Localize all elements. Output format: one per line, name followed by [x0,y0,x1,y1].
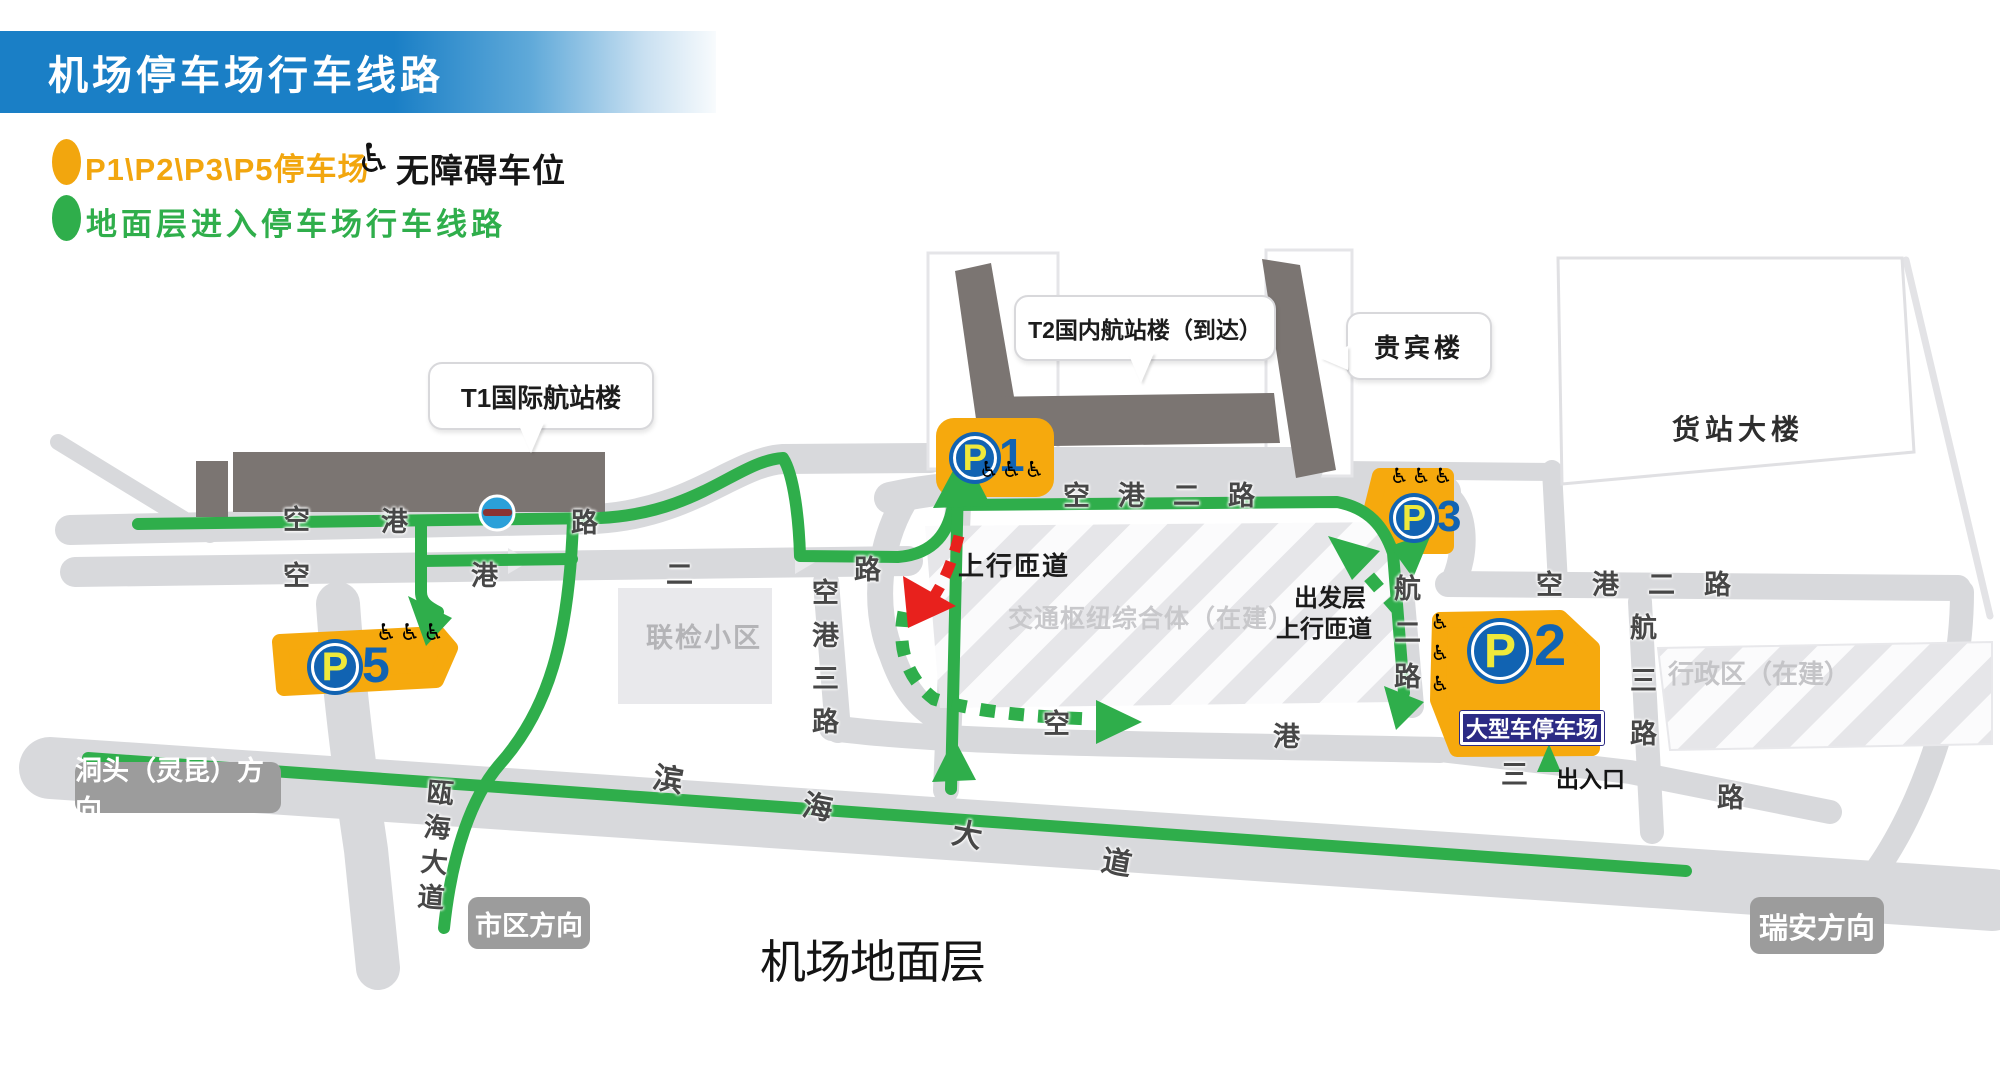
road-kg2mid-char0: 空 [283,554,310,593]
t1-building-annex [196,461,228,517]
t1-callout-pointer [518,423,544,453]
road-kg3e-char1: 港 [1273,715,1300,754]
footer-title: 机场地面层 [760,926,985,992]
p5-badge: P [307,639,363,695]
airport-parking-map: 机场停车场行车线路 P1\P2\P3\P5停车场 ♿ 无障碍车位 地面层进入停车… [0,0,2000,1077]
direction-dongtou-badge: 洞头（灵昆）方向 [75,762,281,813]
large-vehicle-parking-label: 大型车停车场 [1460,711,1604,745]
p3-wheelchair-icons: ♿♿♿ [1390,464,1455,488]
road-kg2-right-label: 空港二路 [1536,563,1760,602]
departure-ramp-label: 出发层 上行匝道 [1276,583,1372,645]
hub-zone-label: 交通枢纽综合体（在建） [1008,599,1294,635]
p3-badge: P [1389,493,1439,543]
road-kg3e-char0: 空 [1043,702,1070,741]
p2-number: 2 [1534,612,1566,679]
departure-ramp-line2: 上行匝道 [1276,616,1372,643]
road-kg1-char1: 港 [381,500,408,539]
inspection-zone-label: 联检小区 [646,616,762,655]
road-kg3e-char3: 路 [1717,776,1744,815]
page-title: 机场停车场行车线路 [48,43,444,101]
legend-route-label: 地面层进入停车场行车线路 [86,199,506,244]
legend-parking-label: P1\P2\P3\P5停车场 [85,144,370,189]
t2-callout: T2国内航站楼（到达） [1014,295,1276,361]
road-kg2mid-char1: 港 [471,554,498,593]
p3-number: 3 [1437,492,1461,542]
p5-letter: P [322,645,349,690]
roundabout-marker [480,496,514,530]
legend-accessible-label: 无障碍车位 [396,144,566,192]
p1-wheelchair-icons: ♿♿♿ [979,458,1047,483]
road-kg1-char0: 空 [283,498,310,537]
departure-ramp-line1: 出发层 [1276,583,1372,614]
vip-callout: 贵宾楼 [1346,312,1492,380]
road-kg2mid-char3: 路 [854,548,881,587]
road-kg3-vertical-label: 空港三路 [804,578,843,750]
title-banner: 机场停车场行车线路 [0,31,716,113]
road-kg2-top-label: 空港二路 [1063,474,1283,513]
p2-badge: P [1467,618,1533,684]
p3-letter: P [1402,497,1426,539]
direction-ruian-badge: 瑞安方向 [1750,897,1884,954]
admin-zone-label: 行政区（在建） [1668,654,1850,691]
road-kg1-char2: 路 [571,501,598,540]
t1-callout: T1国际航站楼 [428,362,654,430]
legend-parking-dot [52,139,81,185]
road-kongang3-east [832,728,1440,750]
road-kg2mid-char2: 二 [666,553,693,592]
legend-route-dot [52,195,81,241]
road-hang3-label: 航三路 [1622,613,1661,772]
up-ramp-label: 上行匝道 [958,546,1070,583]
p2-letter: P [1484,624,1516,679]
t2-callout-pointer [1128,353,1154,383]
boundary-right [1906,260,1990,616]
p5-wheelchair-icons: ♿♿♿ [376,620,447,646]
entrance-label: 出入口 [1556,760,1625,794]
block-cargo [1558,258,1914,484]
road-kg3e-char2: 三 [1501,753,1528,792]
p2-wheelchair-icons: ♿♿♿ [1428,610,1452,703]
wheelchair-icon: ♿ [356,136,392,182]
road-hang2-label: 航二路 [1386,574,1425,706]
vip-callout-pointer [1320,346,1348,370]
cargo-building-label: 货站大楼 [1672,408,1804,448]
direction-city-badge: 市区方向 [468,897,590,949]
route-ouhai [444,521,573,928]
